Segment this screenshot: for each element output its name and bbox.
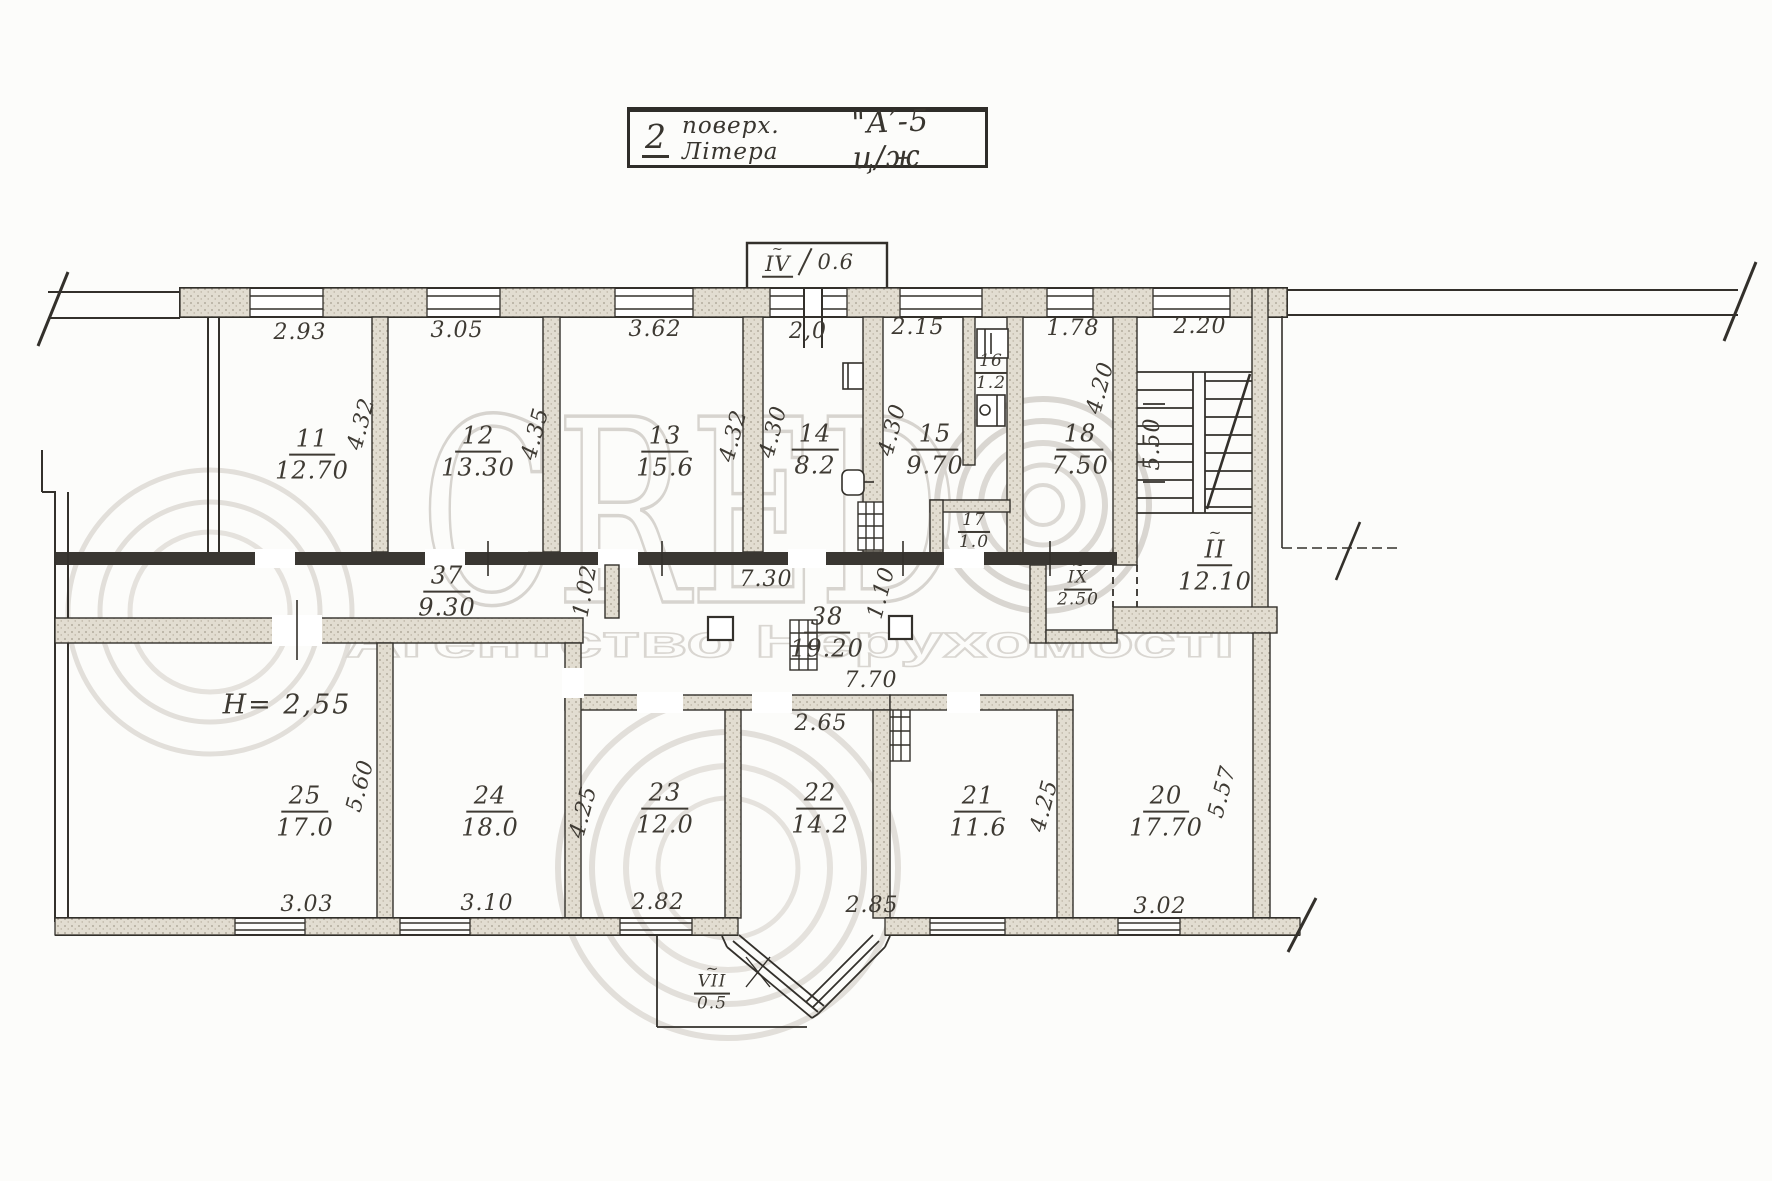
room-24-label: 2418.0 [461,783,518,842]
balcony-code: IV [762,253,793,277]
dim-hall38-length: 7.70 [845,670,898,692]
dim-stairwell-depth: 5.50 [1142,418,1164,471]
title-caption: поверх. Літера [682,113,839,165]
dim-room15-width: 2.15 [892,317,945,339]
ceiling-height-note: H= 2,55 [223,692,352,719]
room-25-label: 2517.0 [276,783,333,842]
room-20-label: 2017.70 [1129,783,1203,842]
room-22-label: 2214.2 [791,780,848,839]
scanned-floor-plan: CRED Агентство Нерухомості [0,0,1772,1181]
dim-corridor-length: 7.30 [740,569,793,591]
corridor-37-label: 379.30 [418,563,475,622]
dim-room22-width: 2.65 [795,713,848,735]
room-16-label: 161.2 [972,352,1010,394]
room-18-label: 187.50 [1051,421,1108,480]
room-14-label: 148.2 [792,421,839,480]
dim-room13-width: 3.62 [629,319,682,341]
balcony-area: 0.6 [818,252,854,273]
west-wall [42,450,68,922]
bay-window-label: ~ VII 0.5 [693,966,731,1015]
floor-number: 2 [642,120,669,158]
dim-room14-width: 2,0 [789,321,827,343]
title-block: 2 поверх. Літера "А′-5 ц/ж [627,107,988,168]
room-17-label: 171.0 [955,511,993,553]
stairwell-label: ~ II 12.10 [1178,529,1252,595]
building-letter-code: "А′-5 ц/ж [851,101,974,175]
room-23-label: 2312.0 [636,780,693,839]
fraction-slash [798,248,813,276]
dim-room24-width: 3.10 [461,893,514,915]
dim-stairwell-width: 2.20 [1174,316,1227,338]
adjacent-section-lines [1282,316,1398,580]
dim-room25-width: 3.03 [281,894,334,916]
balcony-label: ~IV 0.6 [762,247,854,278]
dim-room21-width: 2.85 [846,895,899,917]
dim-room18-width: 1.78 [1047,318,1100,340]
room-13-label: 1315.6 [636,423,693,482]
dim-room23-width: 2.82 [632,892,685,914]
room-21-label: 2111.6 [949,783,1006,842]
dim-room11-width: 2.93 [274,322,327,344]
room-11-label: 1112.70 [275,426,349,485]
room-15-label: 159.70 [906,421,963,480]
room-12-label: 1213.30 [441,423,515,482]
dim-room20-width: 3.02 [1134,896,1187,918]
dim-room12-width: 3.05 [431,320,484,342]
lobby-label: ~ IX 2.50 [1053,562,1103,611]
corridor-38-label: 3819.20 [790,604,864,663]
